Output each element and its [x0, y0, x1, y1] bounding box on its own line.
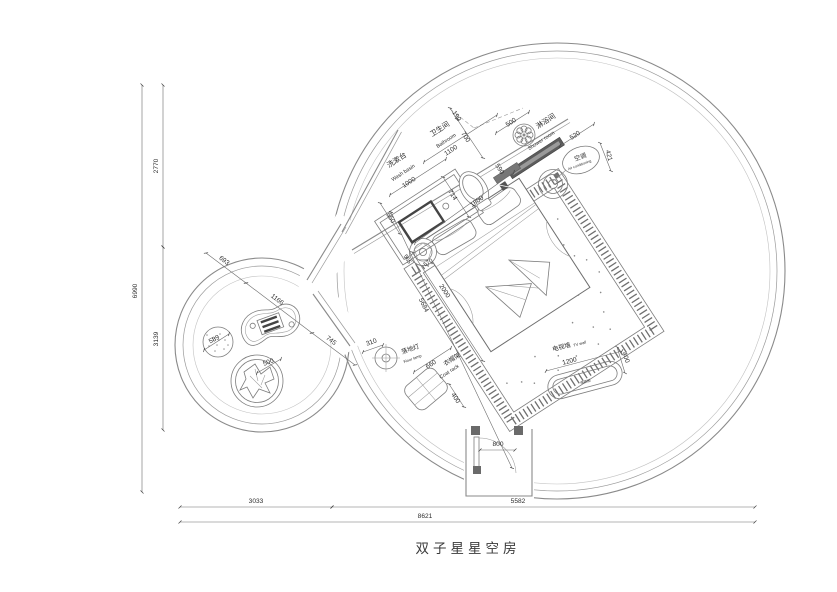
- shower-mat: [493, 137, 564, 183]
- drawing-title: 双子星星空房: [416, 541, 521, 556]
- floor-lamp: [372, 344, 400, 372]
- dim-left-top: 2770: [153, 158, 160, 173]
- round-chair: [231, 355, 283, 407]
- label-coat-rack-en: Coat rack: [439, 363, 461, 380]
- floor-plan-page: 电视柜: [0, 0, 837, 592]
- label-tv-wall-cn: 电视墙: [551, 341, 571, 354]
- dim-714: 714: [446, 189, 458, 202]
- dim-421: 421: [604, 149, 614, 162]
- dim-520: 520: [569, 130, 582, 142]
- dim-500: 500: [505, 117, 518, 129]
- pouf: [203, 327, 233, 357]
- dim-bottom-total: 8621: [418, 513, 433, 520]
- label-tv-wall-en: TV wall: [573, 339, 587, 347]
- dim-washbasin: 1000: [401, 176, 417, 190]
- label-coat-rack-cn: 衣帽架: [442, 351, 462, 368]
- kidney-table: [235, 294, 306, 355]
- floor-plan-drawing: 电视柜: [0, 0, 837, 592]
- dim-1200: 1200: [562, 356, 578, 367]
- dim-190: 190: [450, 110, 462, 123]
- dim-800: 800: [492, 441, 503, 448]
- tv-cabinet: 电视柜: [545, 359, 625, 402]
- label-washbasin-cn: 洗漱台: [385, 150, 408, 169]
- annotations: 6990 2770 3139 3033 5582 8621 洗漱台 Wash b…: [132, 110, 631, 520]
- dim-660: 660: [425, 359, 438, 371]
- dim-310: 310: [365, 337, 378, 347]
- table-device: [257, 313, 284, 335]
- dim-left-total: 6990: [132, 283, 139, 298]
- shower-head-icon: [513, 124, 535, 146]
- dim-bottom-right: 5582: [511, 498, 526, 505]
- dim-bottom-left: 3033: [249, 498, 264, 505]
- dim-bathroom: 1100: [443, 144, 459, 158]
- dim-left-mid: 3139: [153, 331, 160, 346]
- dim-400-rack: 400: [449, 392, 461, 405]
- dim-693: 693: [217, 255, 230, 267]
